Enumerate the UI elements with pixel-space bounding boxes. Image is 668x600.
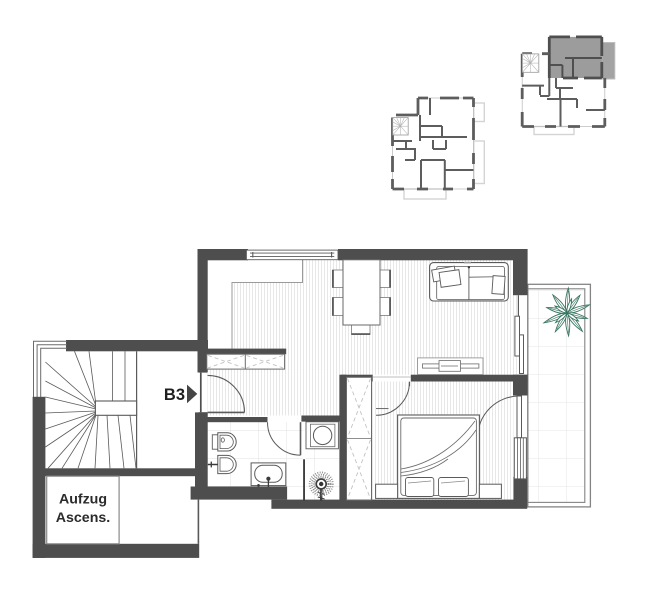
svg-text:Ascens.: Ascens. (56, 510, 110, 526)
svg-text:B3: B3 (164, 386, 185, 404)
svg-text:Aufzug: Aufzug (59, 492, 107, 508)
